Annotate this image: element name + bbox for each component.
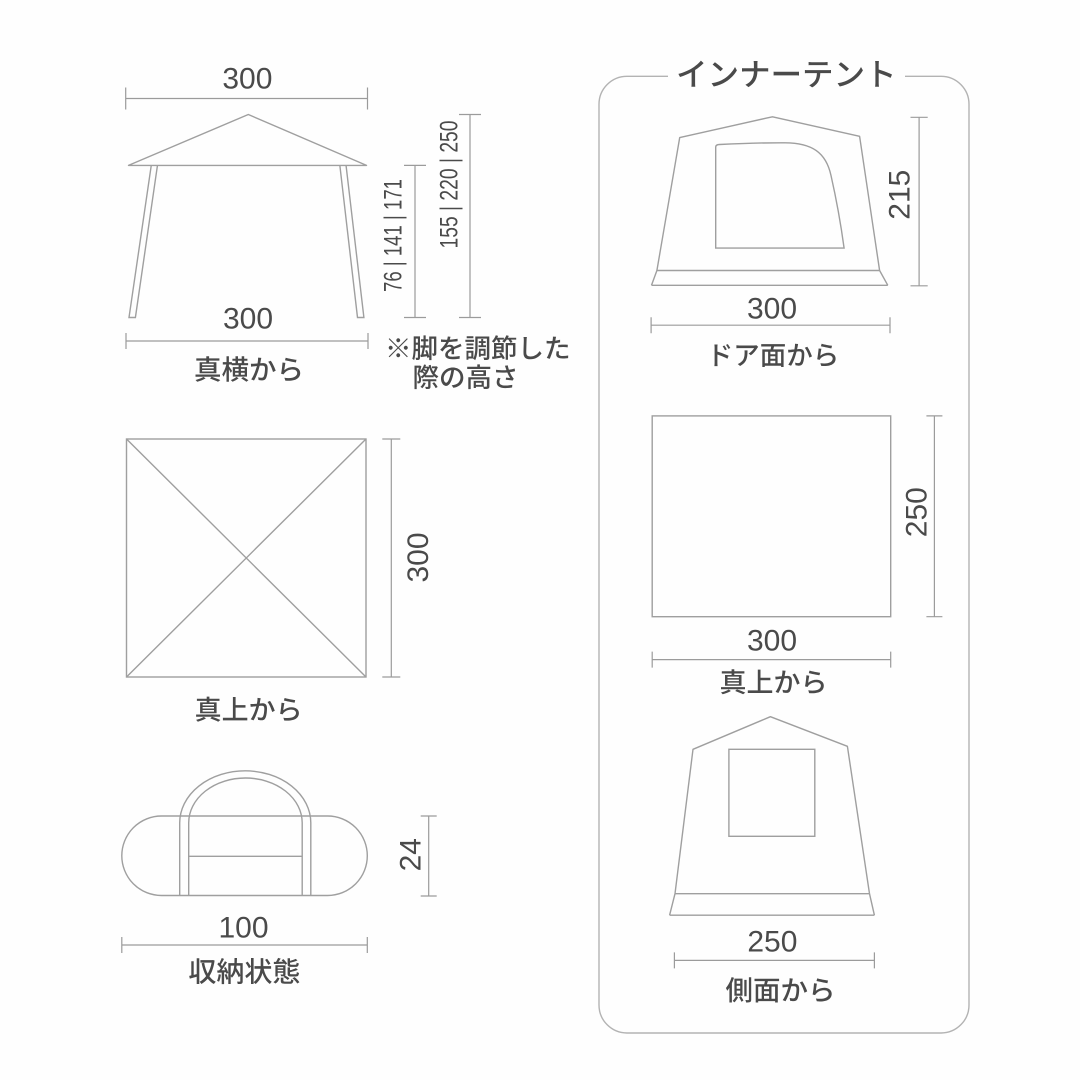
svg-text:250: 250: [747, 926, 797, 959]
svg-text:300: 300: [223, 303, 273, 336]
svg-text:76 | 141 | 171: 76 | 141 | 171: [379, 179, 407, 292]
svg-text:300: 300: [222, 62, 272, 95]
svg-text:250: 250: [901, 487, 934, 537]
svg-text:215: 215: [883, 170, 916, 220]
svg-text:300: 300: [747, 625, 797, 658]
svg-text:300: 300: [402, 532, 435, 582]
svg-text:100: 100: [218, 912, 268, 945]
svg-text:155 | 220 | 250: 155 | 220 | 250: [435, 121, 463, 249]
svg-text:24: 24: [394, 838, 427, 871]
svg-text:300: 300: [747, 293, 797, 326]
